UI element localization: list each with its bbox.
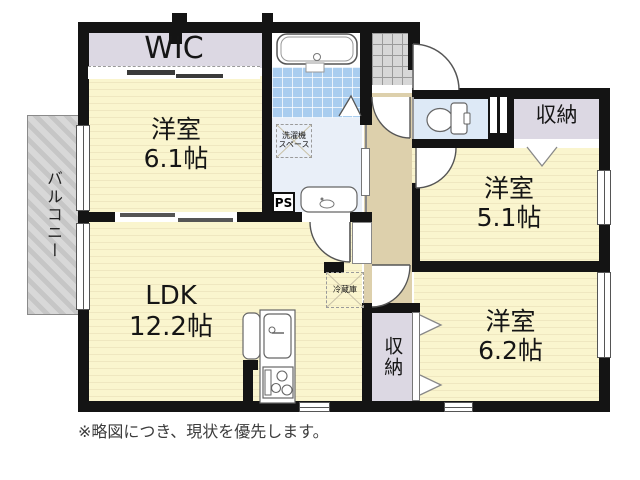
floor-plan: WIC 洋室6.1帖 LDK12.2帖 洋室5.1帖 洋室6.2帖 収納 収納 …	[0, 0, 640, 480]
toilet-door-arc	[372, 97, 410, 138]
hall-ldk-door-arc	[372, 265, 410, 307]
entrance-door-arc	[413, 44, 459, 90]
washbasin-icon	[301, 187, 357, 212]
closet-top-arrow-icon	[527, 147, 557, 166]
bedroom3-label: 洋室6.2帖	[414, 306, 607, 366]
closet-bottom-arrow2-icon	[420, 375, 441, 395]
wic-label: WIC	[86, 28, 262, 70]
bath-folding-door-icon	[339, 96, 361, 116]
ldk-label: LDK12.2帖	[86, 282, 256, 342]
bedroom1-label: 洋室6.1帖	[90, 112, 262, 176]
toilet-icon	[427, 103, 470, 134]
closet-top-label: 収納	[514, 92, 599, 139]
balcony-label: バルコニー	[27, 120, 78, 310]
disclaimer-note: ※略図につき、現状を優先します。	[78, 418, 329, 442]
pipe-space-label: PS	[275, 196, 292, 210]
washroom-door-arc	[310, 222, 350, 262]
bedroom2-label: 洋室5.1帖	[414, 172, 604, 234]
closet-bottom-label: 収納	[370, 315, 414, 399]
bathtub-icon	[277, 34, 357, 72]
pipe-space-box: PS	[272, 192, 295, 213]
washer-space-label: 洗濯機スペース	[276, 128, 312, 154]
fridge-label: 冷蔵庫	[326, 281, 364, 299]
